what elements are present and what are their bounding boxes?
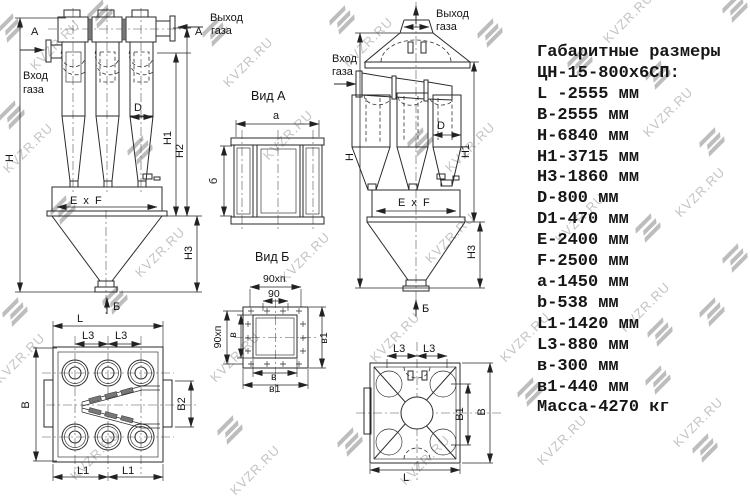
spec-line: L -2555 мм [537,85,750,106]
dim-v-bottom: в [271,371,277,383]
view-b-title: Вид Б [255,250,289,264]
spec-list: Габаритные размерыЦН-15-800х6СП:L -2555 … [537,43,750,419]
spec-line: L3-880 мм [537,336,750,357]
section-a-mark: A [195,26,203,38]
dim-v1-right: в1 [318,332,330,344]
spec-line: H-6840 мм [537,127,750,148]
inlet-manifold [82,386,160,428]
dim-b: B [476,408,488,415]
gas-outlet-label-line2: газа [436,21,458,33]
spec-line: Масса-4270 кг [537,398,750,419]
view-b: Вид Б 90хп 90 90хп в в1 в в1 [212,250,330,396]
spec-line: D-800 мм [537,189,750,210]
view-a: Вид А a б [208,89,324,232]
dim-l1: L1 [77,465,89,477]
dim-90xn-left: 90хп [212,326,224,349]
gas-inlet-label-line1: Вход [23,70,48,82]
dim-h: H [344,153,356,161]
dim-90xn-top: 90хп [263,273,286,285]
spec-panel: Габаритные размерыЦН-15-800х6СП:L -2555 … [537,43,750,419]
view-a-title: Вид А [251,89,286,103]
dim-l1: L1 [122,465,134,477]
dim-l: L [77,313,83,325]
header-hood [365,33,470,62]
dim-h1: H1 [460,144,472,158]
cyclone-body [62,42,85,116]
dim-h3: H3 [466,245,478,259]
dim-l3: L3 [82,330,94,342]
cyclone-body [96,42,119,116]
dim-l3: L3 [393,343,405,355]
spec-line: a-1450 мм [537,273,750,294]
dim-h2: H2 [174,144,186,158]
hopper-cone [52,216,162,281]
plan-view-left: L L3 L3 B B2 L1 L1 [20,313,196,481]
gas-outlet-label-line1: Выход [210,12,243,24]
section-a-mark: A [31,26,39,38]
gas-inlet-label-line2: газа [23,84,45,96]
gas-outlet-label-line1: Выход [436,8,469,20]
dim-h3: H3 [183,246,195,260]
dim-b-small: б [208,178,220,184]
technical-drawing-page: KVZR.RUKVZR.RUKVZR.RUKVZR.RUKVZR.RUKVZR.… [0,0,750,500]
exf-label: E x F [398,197,431,209]
dim-h: H [4,154,16,162]
dim-l: L [403,472,409,484]
dim-v1-bottom: в1 [269,383,281,395]
section-b-mark: Б [422,303,429,315]
dim-v-left: в [227,332,239,338]
front-elevation-view: A Выход газа A Вход газа [4,8,243,314]
spec-line: в-300 мм [537,357,750,378]
gas-outlet-label-line2: газа [211,25,233,37]
spec-line: D1-470 мм [537,210,750,231]
dim-b: B [20,401,32,408]
dim-d: D [437,120,445,132]
spec-title: Габаритные размеры [537,43,750,64]
dim-a: a [273,110,280,122]
side-elevation-view: Выход газа Вход газа [332,2,485,318]
dim-h1: H1 [162,131,174,145]
spec-line: B-2555 мм [537,106,750,127]
dim-l3: L3 [115,330,127,342]
dim-d: D [134,102,142,114]
gas-inlet-label-line2: газа [332,66,354,78]
outlet-opening [401,397,433,429]
spec-model: ЦН-15-800х6СП: [537,64,750,85]
spec-line: L1-1420 мм [537,315,750,336]
dim-90: 90 [268,288,280,300]
spec-line: b-538 мм [537,294,750,315]
dim-b1: B1 [454,407,466,420]
spec-line: E-2400 мм [537,231,750,252]
dim-b2: B2 [176,397,188,410]
spec-line: H3-1860 мм [537,168,750,189]
spec-line: в1-440 мм [537,378,750,399]
dim-l3: L3 [423,343,435,355]
cyclone-body [352,95,390,147]
cyclone-body [397,93,428,147]
gas-inlet-label-line1: Вход [332,53,357,65]
plan-view-right: L3 L3 B1 B L [356,342,502,484]
section-b-mark: Б [113,301,120,313]
spec-line: F-2500 мм [537,252,750,273]
spec-line: H1-3715 мм [537,148,750,169]
exf-label: E x F [70,195,103,207]
